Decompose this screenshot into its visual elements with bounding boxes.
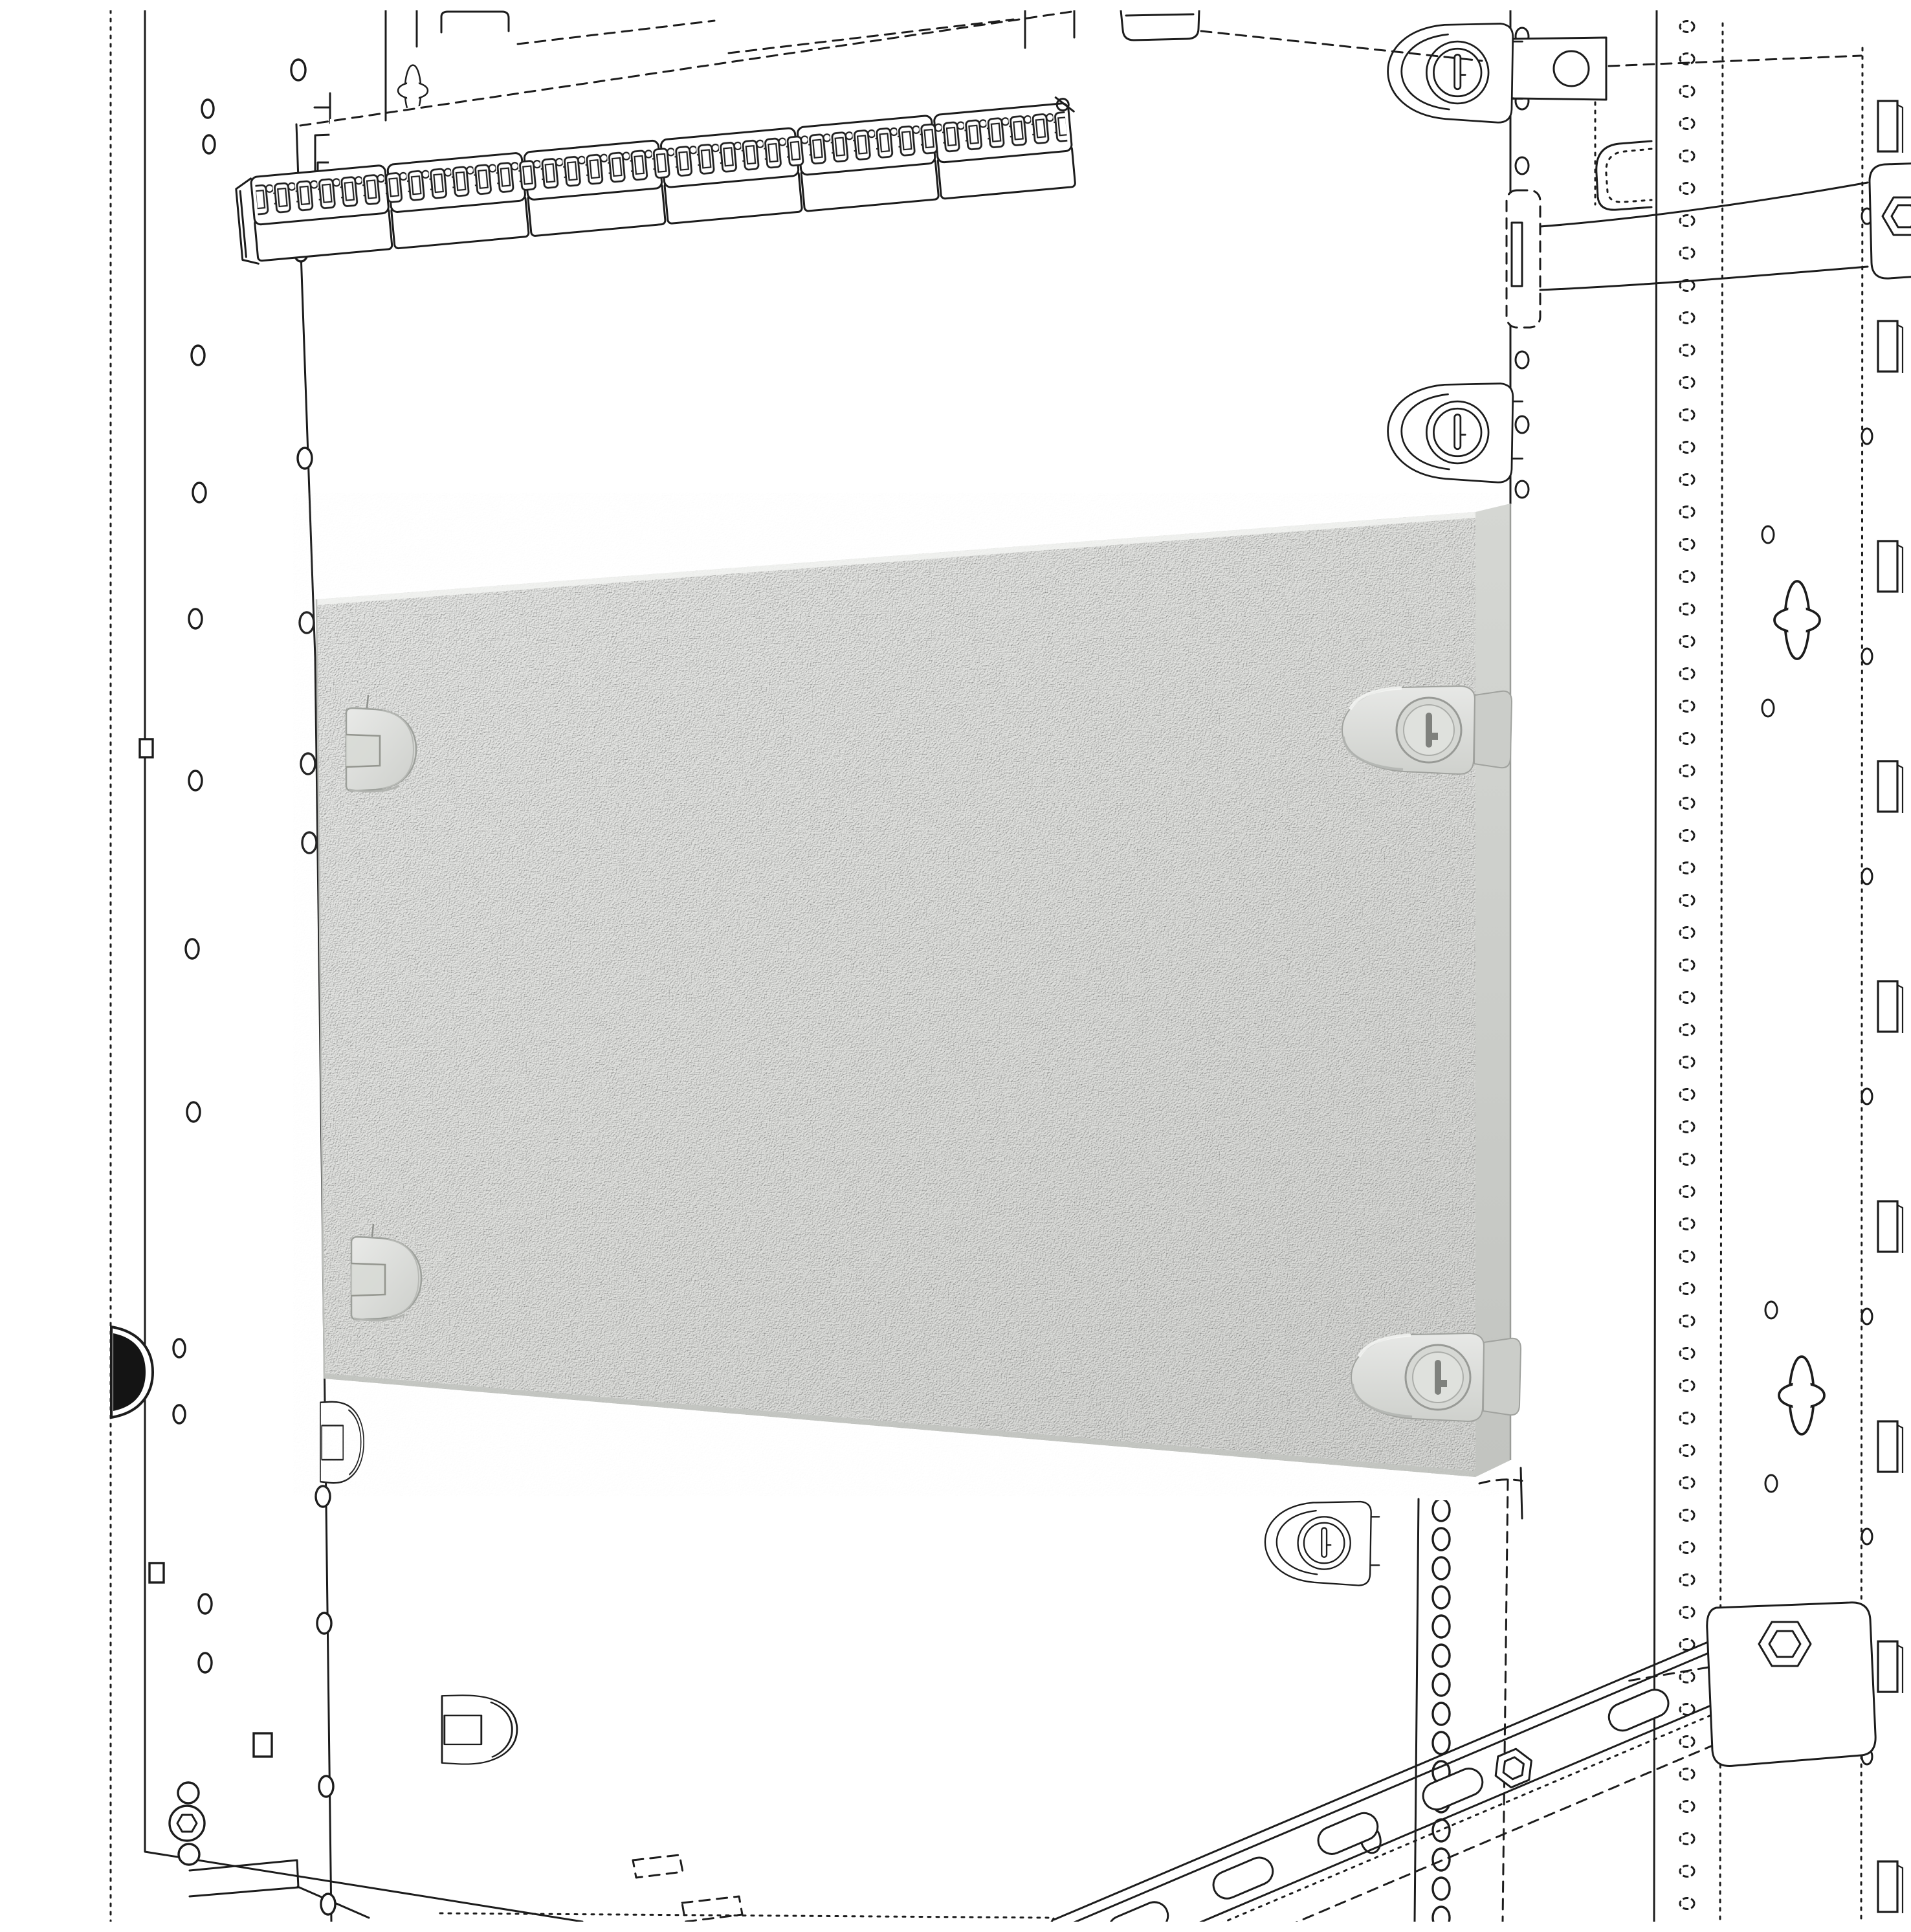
technical-drawing-figure: Black-and-white isometric CAD drawing of… [26, 10, 1911, 1922]
quarter-turn-lock-plate-top [1388, 24, 1523, 123]
quarter-turn-lock-right-bottom [1351, 1333, 1521, 1421]
latch-bracket [1507, 190, 1540, 328]
enclosure-drawing [26, 10, 1911, 1922]
mounting-plate [300, 10, 1510, 598]
quarter-turn-lock-plate-mid [1388, 384, 1523, 483]
quarter-turn-lock-below-panel [1265, 1502, 1379, 1585]
blind-panel-side [1475, 504, 1510, 1477]
blind-panel-face [316, 512, 1475, 1477]
blind-panel [316, 504, 1522, 1518]
quarter-turn-lock-right-top [1342, 686, 1512, 774]
rail-hook [1596, 141, 1651, 210]
